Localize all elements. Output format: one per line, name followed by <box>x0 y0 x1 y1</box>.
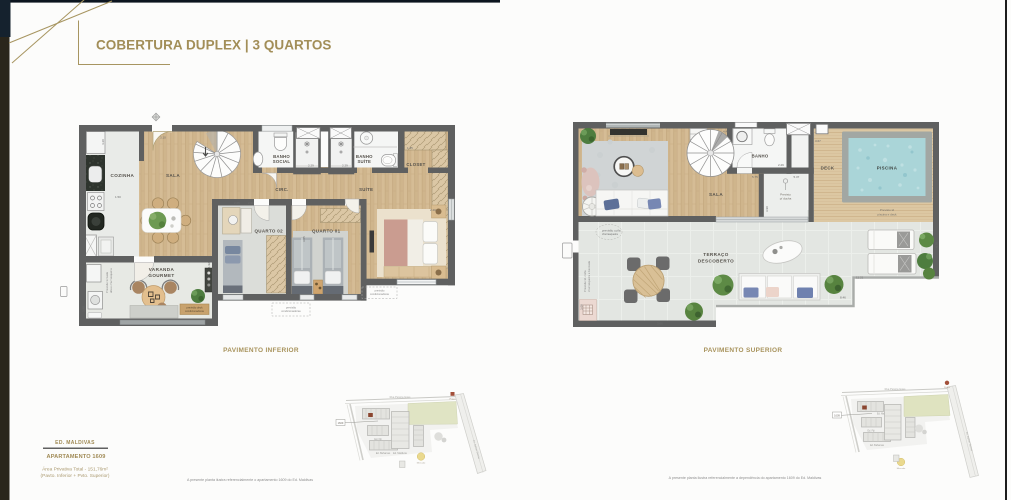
svg-text:2.06: 2.06 <box>234 201 240 205</box>
svg-text:1.50: 1.50 <box>115 195 121 199</box>
svg-text:churrasqueira e bancada: churrasqueira e bancada <box>587 261 591 292</box>
svg-text:SALA: SALA <box>166 173 180 178</box>
svg-text:SOCIAL: SOCIAL <box>273 159 291 164</box>
svg-text:Ed. Bahamas: Ed. Bahamas <box>870 445 885 447</box>
svg-text:Rua Pereira Góes: Rua Pereira Góes <box>390 395 411 399</box>
svg-text:8.46: 8.46 <box>840 296 846 300</box>
svg-text:previsão coifa: previsão coifa <box>602 229 621 233</box>
svg-text:2.91: 2.91 <box>248 201 254 205</box>
svg-text:Mercado: Mercado <box>897 467 906 470</box>
svg-text:APARTAMENTO 1609: APARTAMENTO 1609 <box>47 454 106 460</box>
svg-text:3.66: 3.66 <box>657 322 663 326</box>
svg-text:1.92: 1.92 <box>207 262 211 268</box>
svg-text:SUÍTE: SUÍTE <box>359 187 373 192</box>
svg-text:1609: 1609 <box>834 413 840 417</box>
svg-text:SUÍTE: SUÍTE <box>357 159 371 164</box>
svg-text:QUARTO 01: QUARTO 01 <box>312 229 341 234</box>
svg-text:COZINHA: COZINHA <box>111 173 135 178</box>
svg-text:Mercado: Mercado <box>417 462 426 465</box>
svg-text:(Pavto. Inferior + Pvto. Super: (Pavto. Inferior + Pvto. Superior) <box>41 473 110 479</box>
svg-text:A presente planta ilustra refe: A presente planta ilustra referencialmen… <box>187 478 313 482</box>
svg-text:TERRAÇO: TERRAÇO <box>703 252 729 257</box>
svg-text:PAVIMENTO SUPERIOR: PAVIMENTO SUPERIOR <box>704 347 783 354</box>
svg-text:BANHO: BANHO <box>752 154 769 159</box>
svg-text:2.29: 2.29 <box>778 163 784 167</box>
svg-text:3.67: 3.67 <box>815 139 821 143</box>
svg-text:Previsto td: Previsto td <box>880 208 895 212</box>
svg-text:2.40: 2.40 <box>430 208 436 212</box>
svg-text:QUARTO 02: QUARTO 02 <box>255 229 284 234</box>
svg-text:1.35: 1.35 <box>407 146 413 150</box>
svg-text:ED. MALDIVAS: ED. MALDIVAS <box>55 440 95 446</box>
svg-text:5.75: 5.75 <box>752 175 758 179</box>
svg-text:3.90: 3.90 <box>765 206 769 212</box>
svg-text:Praça: Praça <box>450 398 456 401</box>
svg-text:11.21: 11.21 <box>856 276 864 280</box>
svg-text:VARANDA: VARANDA <box>149 267 175 272</box>
svg-text:2.29: 2.29 <box>308 164 314 168</box>
svg-text:GOURMET: GOURMET <box>148 273 174 278</box>
svg-text:PISCINA: PISCINA <box>877 166 898 171</box>
svg-text:condicionadoras: condicionadoras <box>281 309 301 313</box>
svg-text:condicionadoras: condicionadoras <box>370 292 390 296</box>
svg-text:PAVIMENTO INFERIOR: PAVIMENTO INFERIOR <box>223 347 299 354</box>
svg-text:COBERTURA DUPLEX | 3 QUARTOS: COBERTURA DUPLEX | 3 QUARTOS <box>96 38 331 53</box>
svg-text:1609: 1609 <box>338 421 344 425</box>
svg-text:SALA: SALA <box>709 192 723 197</box>
svg-text:CLOSET: CLOSET <box>406 162 425 167</box>
svg-text:churrasqueira: churrasqueira <box>602 232 618 236</box>
svg-text:4.20: 4.20 <box>101 139 105 145</box>
svg-text:4.78: 4.78 <box>935 242 939 248</box>
svg-text:previsão: previsão <box>286 306 297 310</box>
svg-text:3.10: 3.10 <box>160 136 166 140</box>
svg-text:3.05: 3.05 <box>302 236 306 242</box>
svg-text:CIRC.: CIRC. <box>275 187 288 192</box>
svg-text:Rua Pereira Góes: Rua Pereira Góes <box>885 387 906 391</box>
svg-text:p/ ducha: p/ ducha <box>780 197 792 201</box>
svg-text:3.98: 3.98 <box>82 306 86 312</box>
svg-text:DECK: DECK <box>821 166 835 171</box>
svg-text:5.37: 5.37 <box>794 175 800 179</box>
svg-text:2.29: 2.29 <box>342 164 348 168</box>
svg-text:3.08: 3.08 <box>580 304 584 310</box>
svg-text:Praça: Praça <box>944 386 950 389</box>
svg-text:Área Privativa Total - 151,76m: Área Privativa Total - 151,76m² <box>42 466 108 473</box>
svg-text:piscina e deck: piscina e deck <box>877 213 897 217</box>
svg-text:Ed. Maldivas: Ed. Maldivas <box>393 452 407 455</box>
svg-text:Ed. Bahamas: Ed. Bahamas <box>376 452 391 455</box>
svg-text:condicionadoras: condicionadoras <box>185 309 205 313</box>
svg-text:alta e churrasqueira: alta e churrasqueira <box>109 268 113 293</box>
svg-text:4.40: 4.40 <box>723 130 729 134</box>
svg-text:DESCOBERTO: DESCOBERTO <box>698 259 734 264</box>
svg-text:A presente planta ilustra refe: A presente planta ilustra referencialmen… <box>669 476 822 480</box>
